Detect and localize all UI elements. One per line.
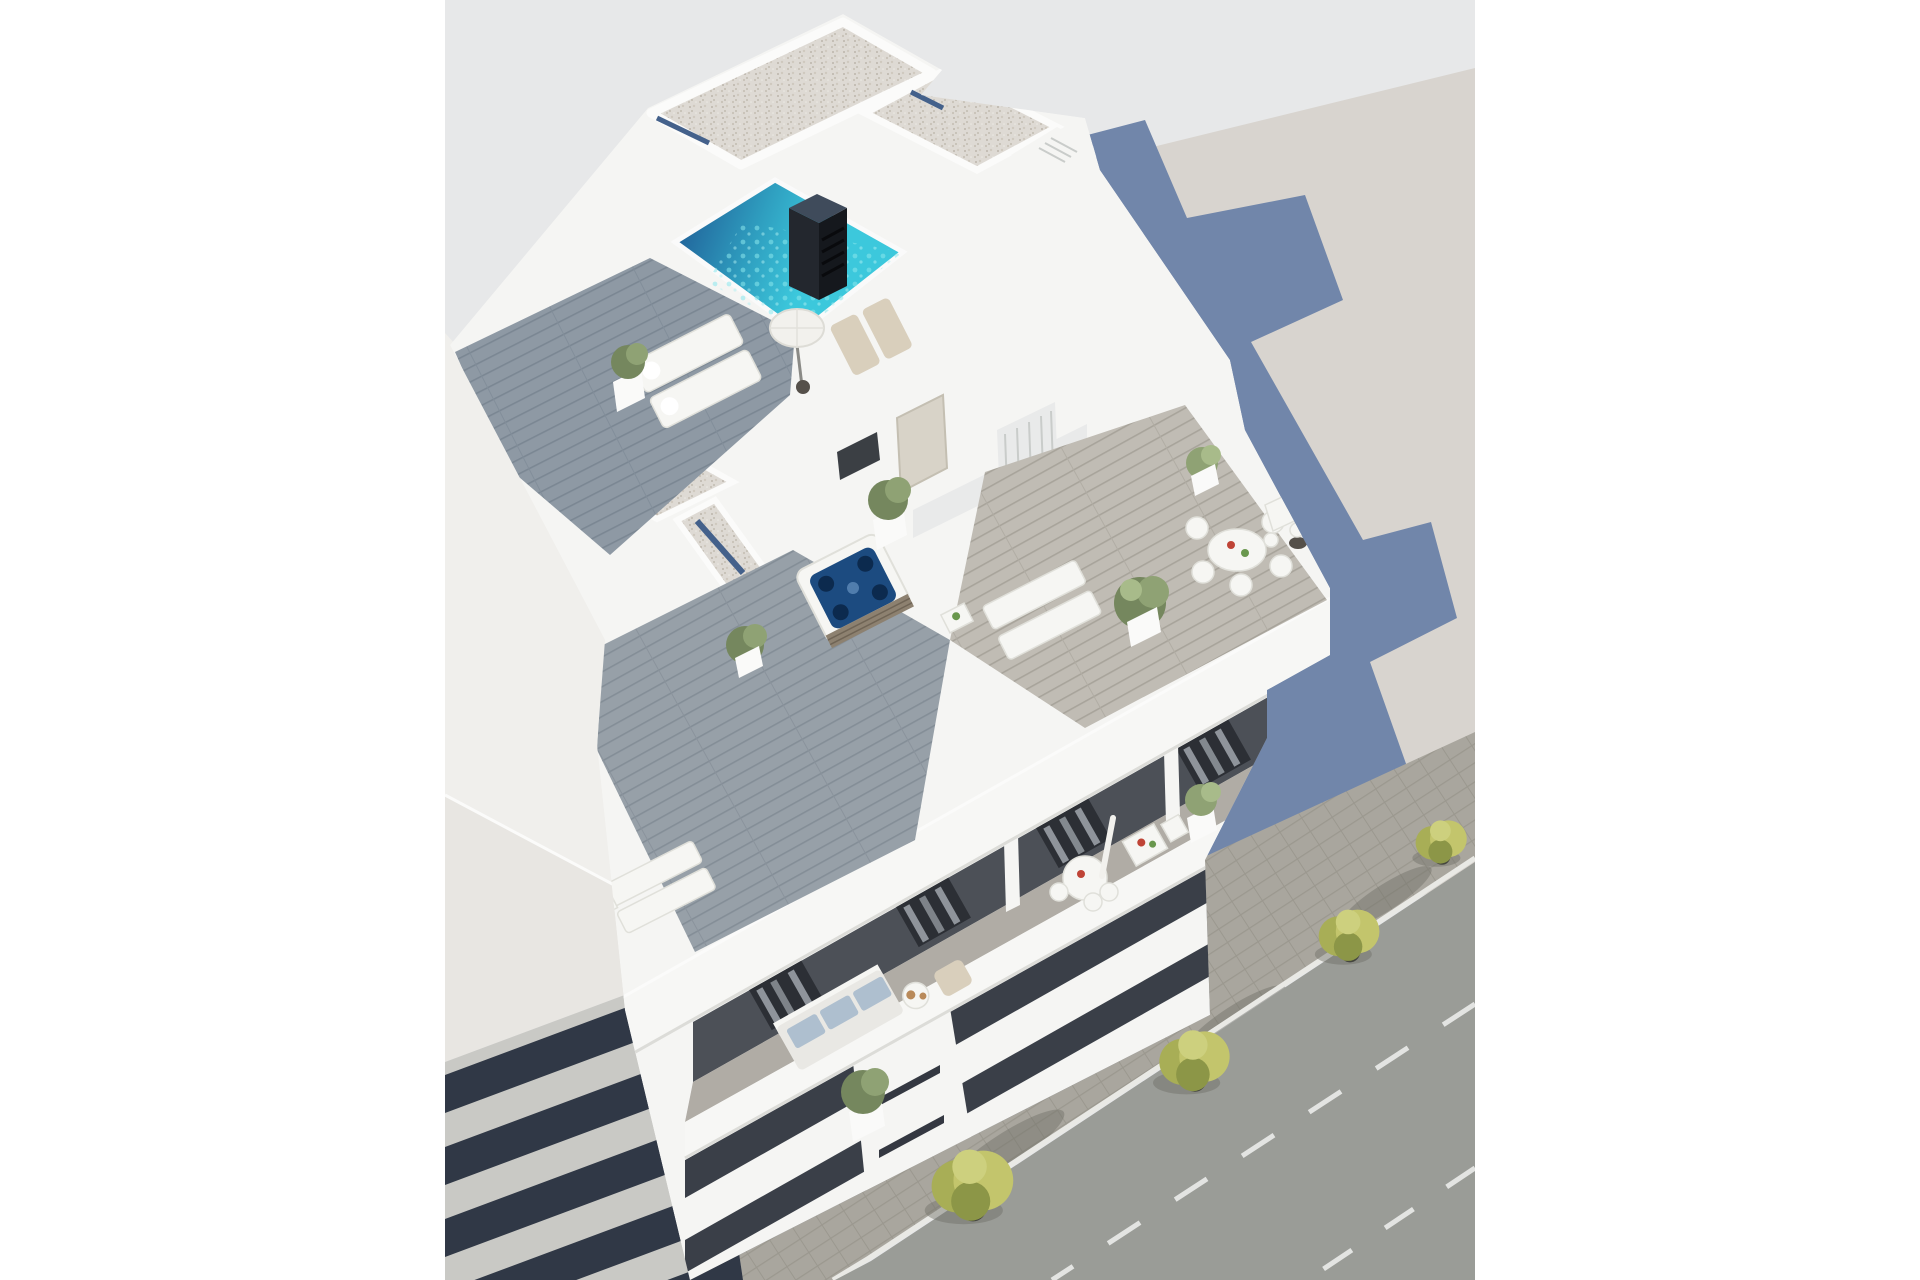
chair bbox=[1192, 561, 1214, 583]
dining-table bbox=[1208, 529, 1266, 571]
chair bbox=[1270, 555, 1292, 577]
chimney-vent bbox=[789, 194, 847, 300]
red-item bbox=[1227, 541, 1235, 549]
bar-stool bbox=[1264, 533, 1278, 547]
chair bbox=[1100, 883, 1118, 901]
chair bbox=[1084, 893, 1102, 911]
red-item bbox=[1077, 870, 1085, 878]
green-item bbox=[1241, 549, 1249, 557]
balcony-divider bbox=[1004, 835, 1020, 912]
architectural-render-photo bbox=[445, 0, 1475, 1280]
render-canvas bbox=[0, 0, 1920, 1280]
chimney-front bbox=[789, 208, 819, 300]
render-scene bbox=[445, 0, 1475, 1280]
chair bbox=[1230, 574, 1252, 596]
chair bbox=[1050, 883, 1068, 901]
balcony-divider bbox=[1164, 745, 1180, 822]
chair bbox=[1186, 517, 1208, 539]
